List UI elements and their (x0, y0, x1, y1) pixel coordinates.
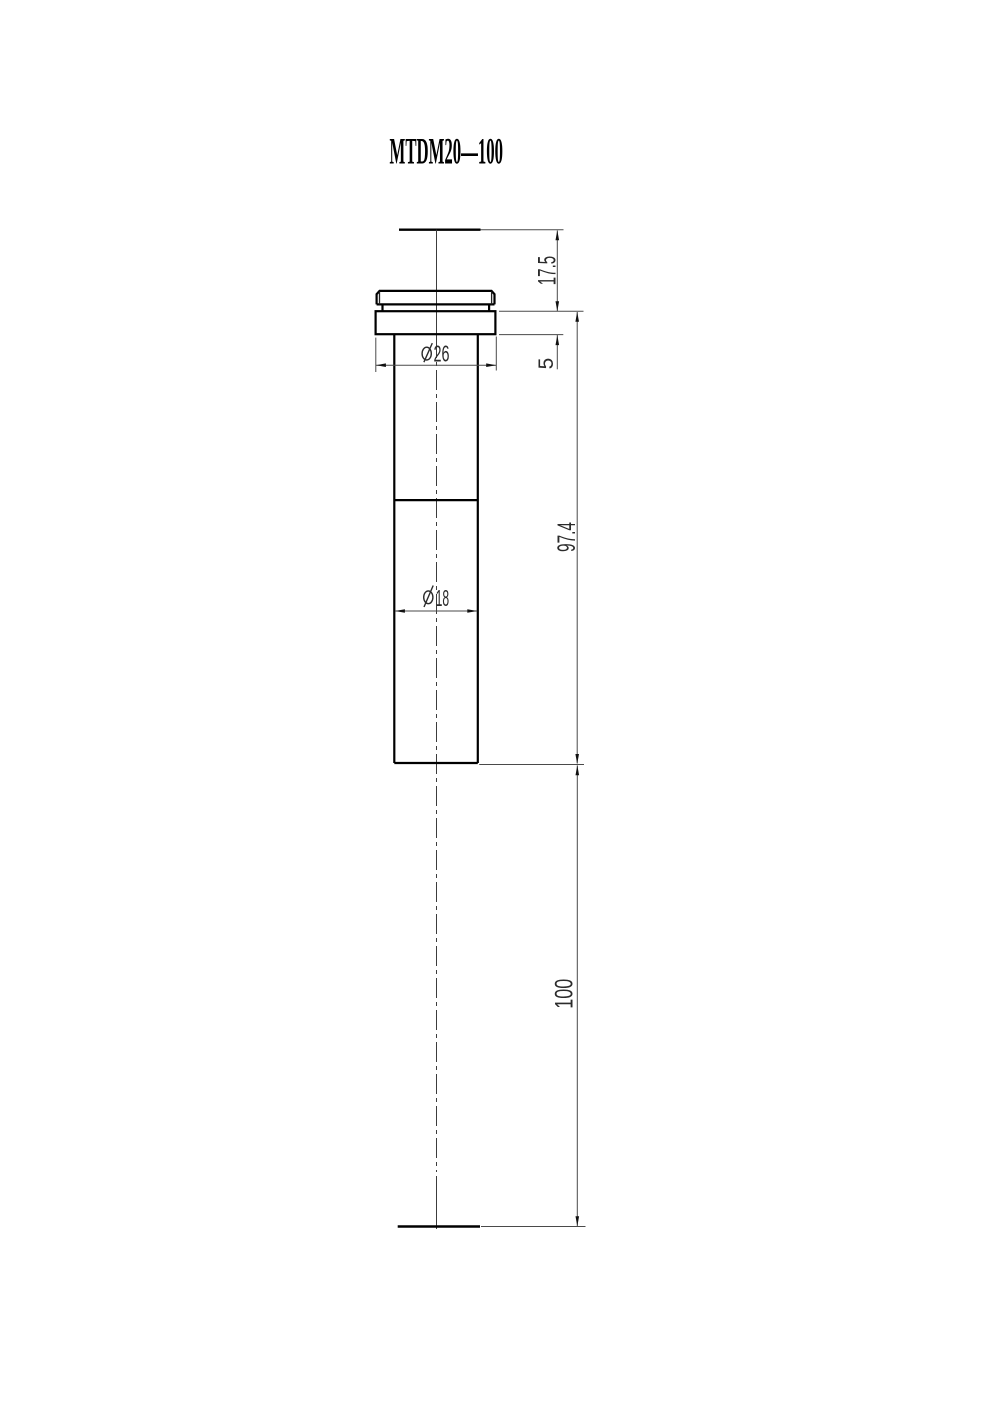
svg-text:18: 18 (436, 585, 450, 611)
svg-text:100: 100 (551, 979, 579, 1009)
svg-text:26: 26 (434, 341, 450, 367)
svg-text:97.4: 97.4 (553, 522, 581, 552)
svg-text:5: 5 (535, 358, 558, 370)
svg-text:17.5: 17.5 (533, 256, 561, 286)
svg-text:MTDM20—100: MTDM20—100 (390, 132, 504, 173)
